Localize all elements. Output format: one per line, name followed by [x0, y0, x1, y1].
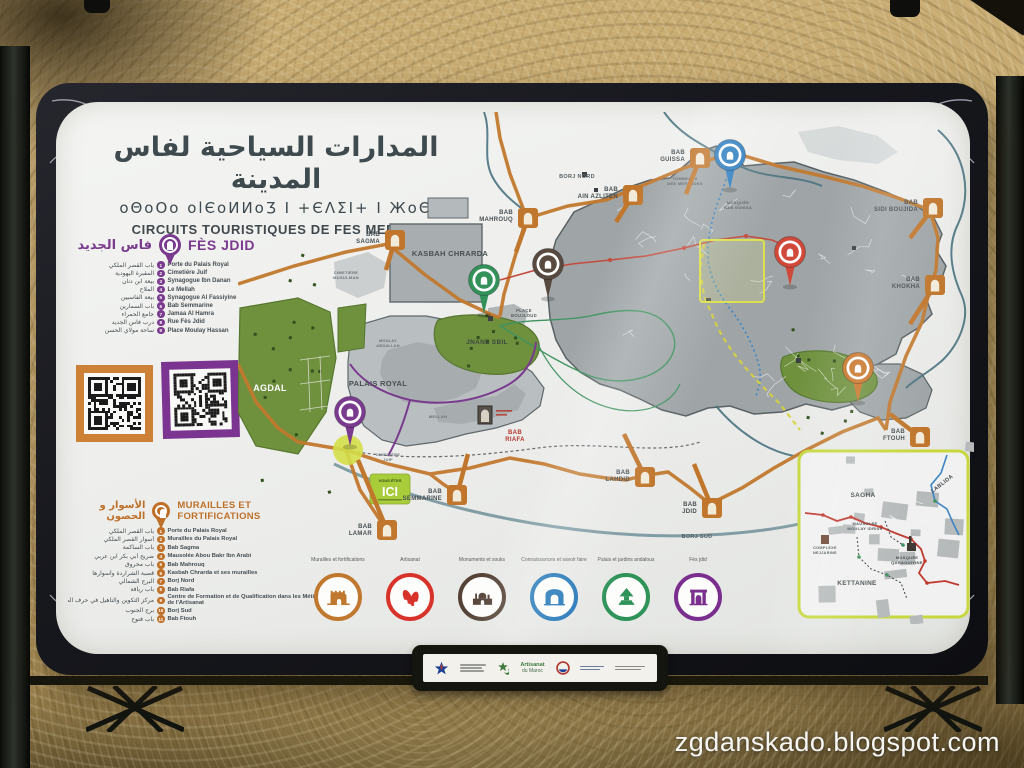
section-title-arabic: الأسوار و الحصون	[68, 500, 145, 522]
item-arabic: درب فاس الجديد	[68, 319, 154, 326]
legend-item: Palais et jardins andalous	[590, 557, 662, 621]
item-number-badge: 5	[157, 294, 165, 302]
gate-arch-icon	[708, 503, 716, 515]
map-legend: Murailles et fortifications Artisanat Mo…	[302, 557, 734, 621]
item-arabic: باب ريافة	[68, 586, 154, 593]
item-label: Murailles du Palais Royal	[168, 536, 238, 542]
seal-logo-icon	[556, 661, 570, 675]
item-label: Cimetière Juif	[168, 270, 208, 276]
map-label: TOMBEAUXDES MERINIDES	[667, 176, 702, 186]
item-label: Bab Semmarine	[168, 303, 213, 309]
map-label: JNANE SBIL	[466, 339, 508, 346]
legend-item: Murailles et fortifications	[302, 557, 374, 621]
item-label: Place Moulay Hassan	[168, 328, 229, 334]
bab-label: BABJDID	[682, 502, 697, 515]
artisanat-label: Artisanat du Maroc	[520, 662, 544, 675]
arabic-caption-bars	[615, 666, 645, 671]
item-arabic: باب الساكمة	[68, 544, 154, 551]
item-label: Bab Sagma	[168, 545, 200, 551]
map-label: KASBAH CHRARDA	[412, 249, 489, 258]
item-arabic: جامع الحمراء	[68, 311, 154, 318]
item-number-badge: 6	[157, 569, 165, 577]
item-label: Bab Ftouh	[168, 616, 197, 622]
inset-label: MOSQUÉEQARAOUIYINE	[891, 555, 923, 565]
left-mounting-post	[0, 46, 30, 768]
map-label: CIMETIÈREMUSULMAN	[333, 270, 359, 280]
inset-highlight-zone	[700, 240, 764, 302]
item-label: Synagogue Ibn Danan	[168, 278, 231, 284]
corner-shadow	[965, 0, 1024, 36]
item-arabic: برج الجنوب	[68, 607, 154, 614]
bab-label: BABMAHROUQ	[479, 210, 513, 223]
qr-code-purple	[161, 360, 240, 439]
svg-text:ICI: ICI	[382, 485, 398, 499]
item-arabic: ساحة مولاي الحسن	[68, 327, 154, 334]
item-arabic: باب محروق	[68, 561, 154, 568]
item-label: Synagogue Al Fassiyine	[168, 295, 237, 301]
map-label: MELLAH	[429, 414, 447, 419]
medina-map: VOUS ÊTES ICI KASBAH CHRARDACIMETIÈREMUS…	[238, 112, 974, 624]
blog-watermark: zgdanskado.blogspot.com	[675, 727, 1000, 758]
item-arabic: ضريح أبي بكر ابن عربي	[68, 553, 154, 560]
item-number-badge: 4	[157, 553, 165, 561]
legend-item: Fès jdid	[662, 557, 734, 621]
item-label: Bab Riafa	[168, 587, 195, 593]
item-label: Bab Mahrouq	[168, 562, 205, 568]
item-number-badge: 8	[157, 319, 165, 327]
legend-item: Monuments et souks	[446, 557, 518, 621]
bab-marker: BABJDID	[682, 464, 722, 518]
item-number-badge: 3	[157, 278, 165, 286]
gate-arch-icon	[929, 203, 937, 215]
map-label: AGDAL	[253, 383, 287, 393]
gate-arch-icon	[696, 153, 704, 165]
gate-arch-icon	[641, 472, 649, 484]
bab-label: BABSAGMA	[356, 232, 380, 245]
item-arabic: مركز التكوين والتأهيل في حرف الصناعة الت…	[68, 597, 154, 604]
bab-label: BABLAMAR	[349, 524, 373, 537]
bab-label: BABGUISSA	[660, 150, 685, 163]
item-number-badge: 11	[157, 615, 165, 623]
item-arabic: باب القصر الملكي	[68, 262, 154, 269]
wall-background: المدارات السياحية لفاس المدينة oΘoOo olЄ…	[0, 0, 1024, 768]
ministry-text	[460, 664, 486, 672]
legend-label: Monuments et souks	[446, 557, 518, 564]
wall-finial	[84, 0, 110, 13]
bab-marker: BABRIAFA	[505, 430, 525, 443]
item-arabic: بيعة ابن دنان	[68, 278, 154, 285]
bab-label: BABLAHDID	[606, 470, 631, 483]
legend-label: Connaissances et savoir faire	[518, 557, 590, 564]
item-number-badge: 8	[157, 586, 165, 594]
map-pin-icon	[152, 502, 170, 520]
item-label: Borj Nord	[168, 578, 195, 584]
item-number-badge: 2	[157, 536, 165, 544]
fortress-icon	[325, 584, 352, 611]
artisanat-logo-icon	[497, 661, 509, 675]
gate-arch-icon	[453, 490, 461, 502]
qr-code-orange	[76, 365, 153, 442]
gate-arch-icon	[391, 235, 399, 247]
item-arabic: باب القصر الملكي	[68, 528, 154, 535]
item-number-badge: 10	[157, 607, 165, 615]
item-arabic: البرج الشمالي	[68, 578, 154, 585]
map-label: BORJ NORD	[559, 174, 595, 180]
inset-label: MAUSOLÉEMOULAY IDRISS	[847, 521, 882, 531]
palace-icon	[685, 584, 712, 611]
item-number-badge: 9	[157, 597, 165, 605]
item-number-badge: 5	[157, 561, 165, 569]
item-label: Le Mellah	[168, 287, 195, 293]
legend-item: Connaissances et savoir faire	[518, 557, 590, 621]
item-number-badge: 2	[157, 270, 165, 278]
map-label: BORJ SUD	[682, 534, 713, 540]
lattice-bracket-icon	[884, 686, 982, 732]
map-pin-icon	[159, 234, 181, 256]
item-arabic: قصبة الشراردة وأسوارها	[68, 570, 154, 577]
sponsor-plaque: Artisanat du Maroc	[412, 645, 668, 691]
item-label: Porte du Palais Royal	[168, 262, 229, 268]
gate-arch-icon	[524, 213, 532, 225]
right-mounting-post	[996, 76, 1024, 704]
gate-icon	[541, 584, 568, 611]
item-arabic: بيعة الفاسيين	[68, 294, 154, 301]
gate-arch-icon	[931, 280, 939, 292]
map-label: MOULAYABDALLAH	[376, 339, 400, 348]
item-arabic: أسوار القصر الملكي	[68, 536, 154, 543]
item-arabic: باب السمارين	[68, 303, 154, 310]
item-arabic: باب فتوح	[68, 616, 154, 623]
legend-label: Palais et jardins andalous	[590, 557, 662, 564]
garden-icon	[613, 584, 640, 611]
item-label: Jamaa Al Hamra	[168, 311, 214, 317]
legend-label: Murailles et fortifications	[302, 557, 374, 564]
legend-label: Artisanat	[374, 557, 446, 564]
item-arabic: المقبرة اليهودية	[68, 270, 154, 277]
item-arabic: الملاح	[68, 286, 154, 293]
legend-item: Artisanat	[374, 557, 446, 621]
item-number-badge: 7	[157, 310, 165, 318]
bab-label: BABRIAFA	[505, 430, 525, 443]
inset-label: KETTANINE	[837, 580, 877, 587]
inset-label: COMPLEXENEJJARINE	[813, 546, 837, 555]
item-label: Porte du Palais Royal	[168, 528, 227, 534]
bab-marker: BABMAHROUQ	[479, 208, 538, 252]
item-number-badge: 3	[157, 544, 165, 552]
agdal-garden	[238, 298, 336, 454]
wall-finial	[890, 0, 920, 17]
item-label: Rue Fès Jdid	[168, 319, 205, 325]
gate-arch-icon	[629, 190, 637, 202]
lattice-bracket-icon	[86, 686, 184, 732]
item-label: Borj Sud	[168, 608, 192, 614]
section-title-arabic: فاس الجديد	[68, 238, 152, 253]
item-number-badge: 6	[157, 302, 165, 310]
seal-text	[580, 666, 604, 671]
svg-text:VOUS ÊTES: VOUS ÊTES	[379, 478, 402, 483]
item-number-badge: 1	[157, 261, 165, 269]
item-number-badge: 7	[157, 578, 165, 586]
inset-label: SAGHA	[851, 492, 876, 499]
gate-arch-icon	[383, 525, 391, 537]
map-panel: المدارات السياحية لفاس المدينة oΘoOo olЄ…	[56, 102, 970, 654]
monuments-icon	[469, 584, 496, 611]
ministry-star-logo-icon	[434, 661, 449, 676]
map-label: PALAIS ROYAL	[349, 379, 407, 388]
item-number-badge: 9	[157, 327, 165, 335]
item-number-badge: 4	[157, 286, 165, 294]
bab-label: BABFTOUH	[883, 429, 905, 442]
nejjarine-icon	[821, 535, 829, 544]
babouches-icon	[397, 584, 424, 611]
gate-arch-icon	[916, 432, 924, 444]
legend-label: Fès jdid	[662, 557, 734, 564]
inset-map: SAGHALABLIDAMAUSOLÉEMOULAY IDRISSCOMPLEX…	[799, 442, 974, 624]
map-label: MOSQUÉEBAB GUISSA	[724, 200, 752, 210]
